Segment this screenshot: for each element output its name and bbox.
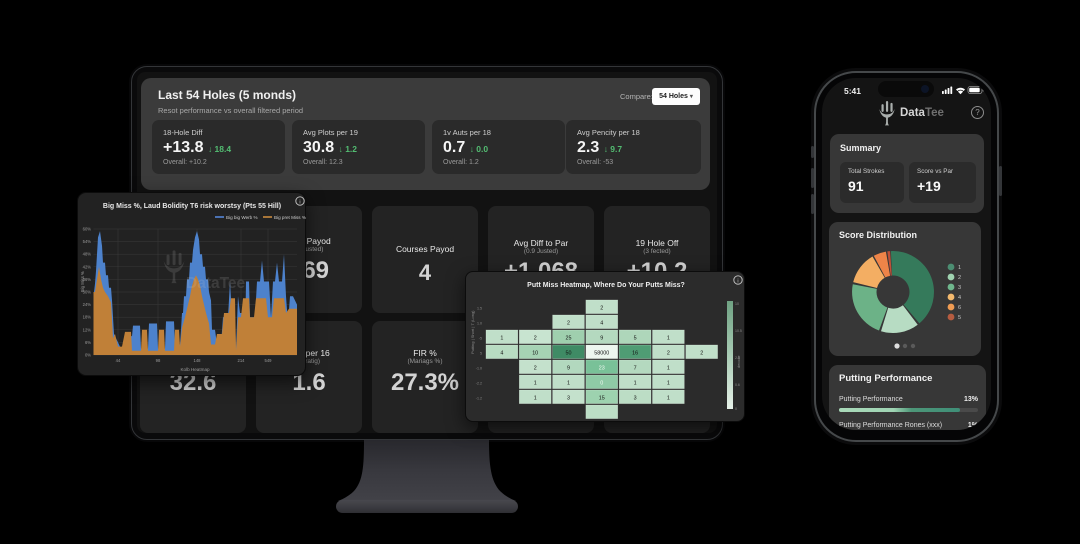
svg-text:1: 1 [500,336,503,342]
svg-text:9: 9 [567,366,570,372]
svg-text:3: 3 [567,396,570,402]
svg-text:58000: 58000 [594,351,609,357]
svg-text:2: 2 [700,351,703,357]
svg-text:2: 2 [958,275,961,281]
svg-text:2: 2 [600,306,603,312]
svg-text:24%: 24% [83,302,92,307]
svg-text:0%: 0% [85,353,91,358]
svg-text:5: 5 [480,352,482,356]
svg-text:18%: 18% [83,315,92,320]
svg-text:Putt Miss Heatmap, Where Do Yo: Putt Miss Heatmap, Where Do Your Putts M… [527,282,685,289]
svg-text:DataTee: DataTee [186,275,246,292]
svg-text:42%: 42% [83,264,92,269]
svg-text:Big pret Miss %: Big pret Miss % [274,215,306,220]
svg-text:50: 50 [566,351,572,357]
svg-text:0: 0 [600,381,603,387]
svg-text:6: 6 [958,305,961,311]
svg-text:10.5: 10.5 [735,329,742,333]
svg-text:decode: decode [737,356,741,368]
svg-text:3: 3 [634,396,637,402]
svg-text:1: 1 [958,265,961,271]
svg-text:214: 214 [238,358,246,363]
svg-text:12%: 12% [83,327,92,332]
svg-text:1.0: 1.0 [477,322,482,326]
svg-text:-1.2: -1.2 [476,397,482,401]
svg-text:1: 1 [634,381,637,387]
svg-text:4: 4 [600,321,603,327]
svg-text:0: 0 [735,407,737,411]
svg-text:1: 1 [534,381,537,387]
svg-text:i: i [299,200,300,206]
svg-text:1: 1 [567,381,570,387]
svg-text:10: 10 [532,351,538,357]
svg-text:25: 25 [566,336,572,342]
svg-text:5: 5 [634,336,637,342]
svg-text:1: 1 [667,366,670,372]
svg-text:15: 15 [599,396,605,402]
svg-text:1: 1 [667,381,670,387]
svg-text:Kolb Heatmap: Kolb Heatmap [180,367,210,372]
svg-text:Big Miss %, Laud Bolidity T6 r: Big Miss %, Laud Bolidity T6 risk worsts… [103,203,281,210]
svg-text:2: 2 [534,336,537,342]
svg-text:48%: 48% [83,252,92,257]
svg-text:7: 7 [634,366,637,372]
svg-text:0.6: 0.6 [735,383,740,387]
svg-text:Big Miss %: Big Miss % [80,271,85,292]
svg-text:1.5: 1.5 [477,307,482,311]
svg-text:4: 4 [500,351,503,357]
svg-text:23: 23 [599,366,605,372]
svg-text:2: 2 [667,351,670,357]
svg-text:6%: 6% [85,340,91,345]
svg-text:1: 1 [667,336,670,342]
svg-text:2: 2 [567,321,570,327]
svg-text:Putting | Short | T (Long): Putting | Short | T (Long) [470,310,475,354]
svg-text:16: 16 [632,351,638,357]
svg-text:98: 98 [156,358,161,363]
svg-text:2: 2 [534,366,537,372]
svg-text:5: 5 [958,315,961,321]
svg-text:148: 148 [194,358,202,363]
svg-text:-2.2: -2.2 [476,382,482,386]
svg-text:60%: 60% [83,227,92,232]
svg-text:-1.0: -1.0 [476,367,482,371]
svg-text:-5: -5 [479,337,482,341]
svg-text:i: i [737,279,738,285]
svg-text:549: 549 [265,358,273,363]
svg-text:1: 1 [534,396,537,402]
svg-text:54%: 54% [83,239,92,244]
svg-text:10: 10 [735,302,739,306]
svg-text:44: 44 [116,358,121,363]
svg-text:9: 9 [600,336,603,342]
svg-text:Big big Werb %: Big big Werb % [226,215,258,220]
svg-text:4: 4 [958,295,961,301]
svg-text:1: 1 [667,396,670,402]
svg-text:3: 3 [958,285,961,291]
